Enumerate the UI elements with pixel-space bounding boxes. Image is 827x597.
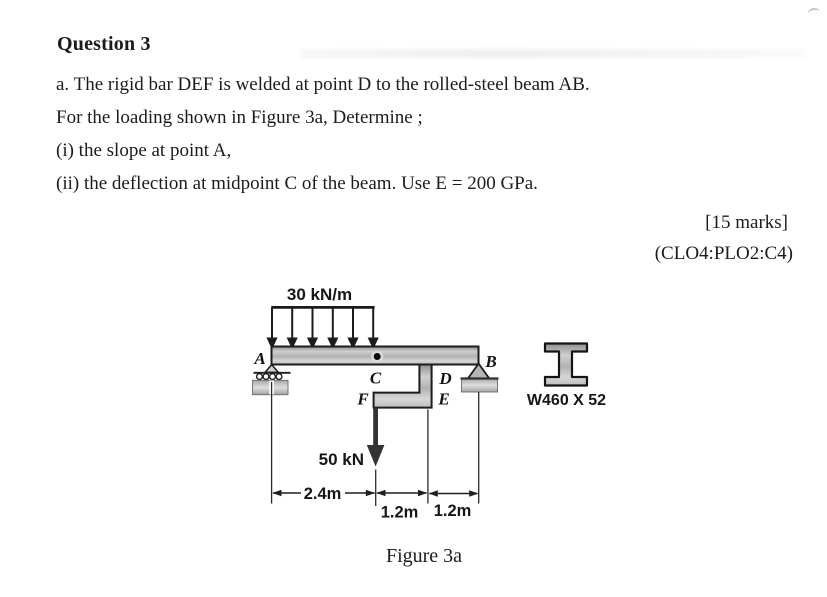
point-load-shaft: [373, 408, 378, 448]
node-label-F: F: [356, 390, 369, 409]
rigid-bar-DEF: [374, 365, 432, 408]
udl-arrows: [268, 308, 377, 347]
dimension-label-1-2m-right: 1.2m: [434, 502, 472, 520]
node-label-A: A: [253, 349, 265, 368]
beam-figure: 30 kN/m 50 kN: [0, 0, 827, 597]
i-beam-icon: [545, 344, 587, 386]
support-block: [462, 379, 498, 392]
distributed-load: 30 kN/m: [268, 285, 377, 347]
dimension-label-2-4m: 2.4m: [304, 485, 342, 503]
node-label-C: C: [370, 369, 382, 388]
roller-triangle: [265, 365, 278, 373]
dimension-label-1-2m-left: 1.2m: [381, 504, 419, 522]
point-load-label: 50 kN: [319, 450, 364, 469]
w-section: W460 X 52: [527, 344, 606, 410]
point-load-50kN: 50 kN: [319, 408, 385, 470]
node-label-B: B: [484, 352, 496, 371]
section-label: W460 X 52: [527, 392, 606, 409]
point-load-arrowhead: [367, 445, 385, 467]
scanned-exam-page: Question 3 a. The rigid bar DEF is welde…: [0, 0, 827, 597]
point-C-marker: [374, 353, 381, 360]
roller-wheels: [257, 374, 282, 380]
distributed-load-label: 30 kN/m: [287, 285, 352, 304]
node-label-D: D: [438, 369, 451, 388]
node-label-E: E: [437, 390, 449, 409]
figure-caption: Figure 3a: [348, 545, 500, 568]
